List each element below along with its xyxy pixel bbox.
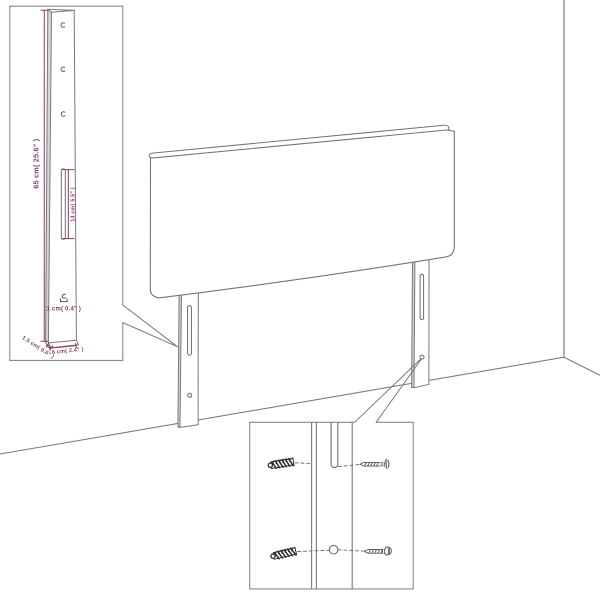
svg-text:14 cm( 5.5" ): 14 cm( 5.5" ) <box>71 187 77 222</box>
svg-text:1 cm( 0.4" ): 1 cm( 0.4" ) <box>47 306 82 312</box>
svg-text:65 cm( 25.6" ): 65 cm( 25.6" ) <box>31 138 40 188</box>
